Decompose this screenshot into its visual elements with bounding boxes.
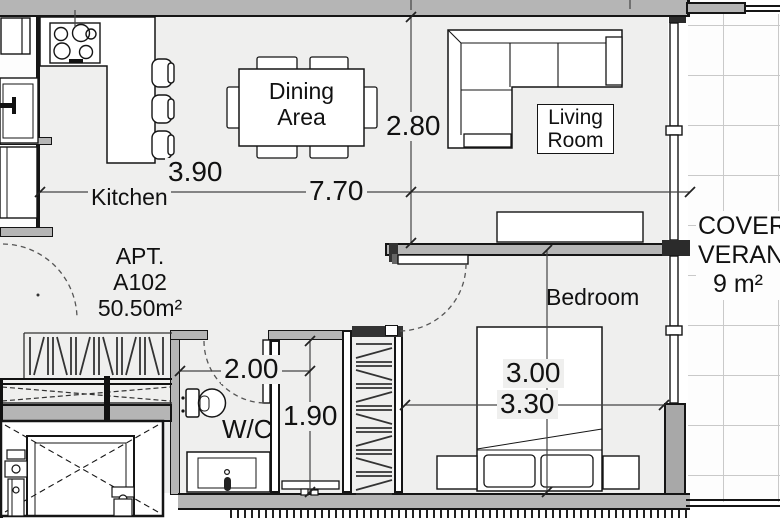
sink-vanity-icon [187, 452, 270, 492]
dim-bed-width: 3.00 [503, 359, 564, 388]
bedroom-door [392, 254, 468, 331]
kitchen-label: Kitchen [88, 185, 171, 210]
dim-bath-depth: 1.90 [280, 402, 341, 431]
bar-stools [152, 59, 174, 159]
wardrobe-hall [0, 333, 172, 384]
corridor-wall-bar [104, 376, 110, 423]
dim-bedroom-width: 3.30 [497, 390, 558, 419]
entrance-door [3, 244, 77, 318]
dim-kitchen-width: 3.90 [165, 158, 226, 187]
wc-label: W/C [222, 415, 273, 444]
apartment-area: 50.50m² [88, 295, 192, 321]
dim-living-depth: 2.80 [383, 112, 444, 141]
dim-wc-width: 2.00 [221, 355, 282, 384]
neighbor-kitchen [0, 18, 38, 218]
sliding-doors [0, 387, 172, 403]
window-bedroom [666, 256, 682, 403]
window-living [662, 17, 690, 256]
floor-plan: Kitchen Dining Area Living Room Bedroom … [0, 0, 780, 518]
apartment-number: A102 [88, 269, 192, 295]
living-room-label-box: Living Room [537, 104, 614, 154]
tv-cabinet [497, 212, 643, 242]
stove-icon [50, 23, 100, 63]
dining-area-label: Dining Area [239, 78, 364, 130]
veranda-area: 9 m² [698, 270, 780, 299]
toilet-icon [181, 389, 225, 417]
dim-overall-width: 7.70 [306, 177, 367, 206]
bedroom-label: Bedroom [546, 285, 639, 310]
elevator-icon [1, 421, 163, 516]
apartment-type: APT. [88, 243, 192, 269]
wardrobe-bedroom [356, 344, 392, 494]
veranda-label: COVERED VERANDA 9 m² [696, 211, 780, 300]
apartment-label: APT. A102 50.50m² [88, 243, 192, 321]
